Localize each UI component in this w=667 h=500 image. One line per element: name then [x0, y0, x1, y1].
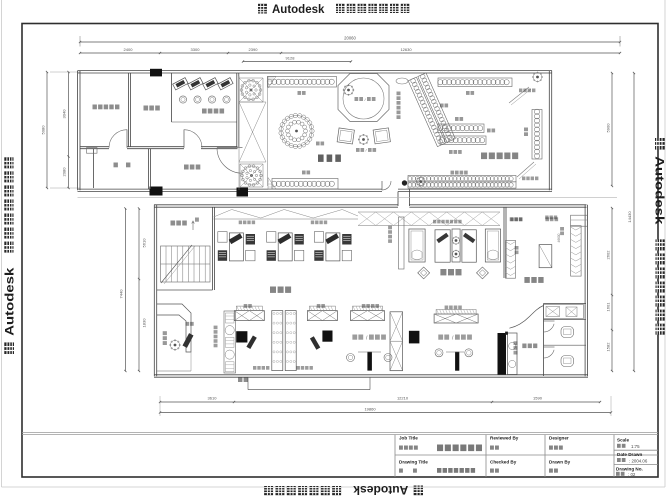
svg-text:12210: 12210: [397, 396, 409, 401]
svg-text:Drawing No.: Drawing No.: [616, 467, 643, 472]
svg-text:1590: 1590: [533, 396, 543, 401]
svg-text:5610: 5610: [142, 238, 147, 248]
svg-text:Autodesk: Autodesk: [353, 483, 408, 496]
svg-text:1601: 1601: [606, 302, 611, 312]
svg-text:Drawn By: Drawn By: [549, 460, 571, 465]
svg-text:14430: 14430: [627, 211, 632, 223]
svg-text:1582: 1582: [606, 342, 611, 352]
svg-text:12630: 12630: [400, 47, 412, 52]
svg-text:5080: 5080: [41, 125, 46, 135]
svg-text:Autodesk: Autodesk: [653, 156, 666, 225]
svg-text:7440: 7440: [119, 289, 124, 299]
svg-text:: 02: : 02: [628, 472, 636, 477]
svg-text:1830: 1830: [142, 318, 147, 328]
svg-text:3300: 3300: [191, 47, 201, 52]
svg-text:Designer: Designer: [549, 436, 569, 441]
svg-text:2080: 2080: [62, 167, 67, 177]
svg-text:2400: 2400: [124, 47, 134, 52]
svg-text:1:75: 1:75: [631, 444, 640, 449]
svg-text:9128: 9128: [286, 56, 296, 61]
svg-text:Drawing Title: Drawing Title: [399, 460, 428, 465]
svg-text:2602: 2602: [606, 250, 611, 260]
svg-text:Autodesk: Autodesk: [272, 4, 325, 16]
svg-text:Reviewed By: Reviewed By: [490, 436, 519, 441]
svg-text:Job Title: Job Title: [399, 436, 418, 441]
svg-text:Date Drawn: Date Drawn: [617, 452, 642, 457]
svg-text:2390: 2390: [249, 47, 259, 52]
svg-text:3610: 3610: [208, 396, 218, 401]
svg-text:46600: 46600: [557, 233, 561, 242]
svg-text:19860: 19860: [364, 407, 376, 412]
svg-text:Scale: Scale: [617, 438, 629, 443]
svg-text:Autodesk: Autodesk: [3, 267, 16, 336]
svg-text:20060: 20060: [344, 36, 356, 41]
svg-text:Checked By: Checked By: [490, 460, 517, 465]
svg-text:: 2004.06: : 2004.06: [629, 459, 648, 464]
svg-text:5900: 5900: [606, 123, 611, 133]
svg-text:3040: 3040: [62, 109, 67, 119]
